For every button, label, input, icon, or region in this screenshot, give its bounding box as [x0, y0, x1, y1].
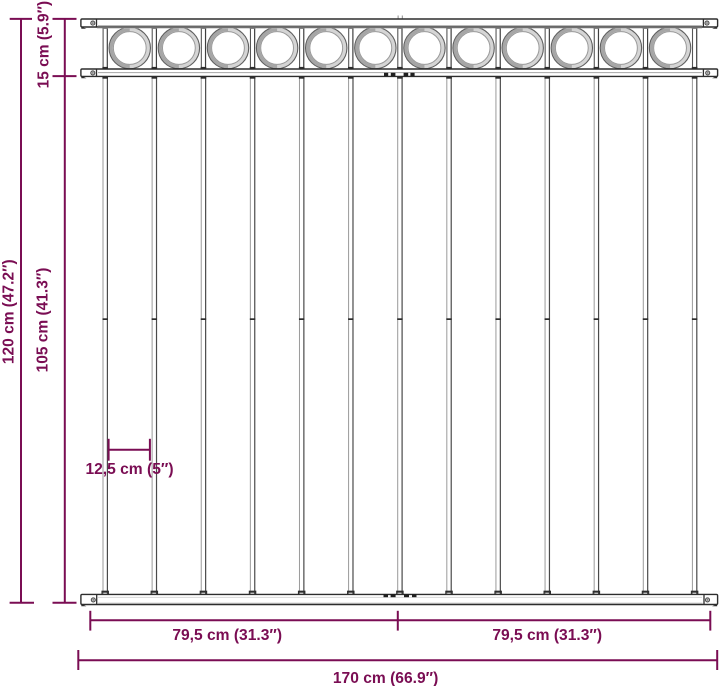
svg-text:105 cm (41.3″): 105 cm (41.3″) [34, 268, 51, 373]
svg-text:79,5 cm (31.3″): 79,5 cm (31.3″) [492, 627, 602, 644]
svg-text:120 cm (47.2″): 120 cm (47.2″) [1, 259, 18, 364]
svg-text:15 cm (5.9″): 15 cm (5.9″) [36, 1, 53, 89]
svg-text:79,5 cm (31.3″): 79,5 cm (31.3″) [172, 627, 282, 644]
svg-text:170 cm (66.9″): 170 cm (66.9″) [333, 670, 438, 686]
svg-text:12,5 cm (5″): 12,5 cm (5″) [85, 461, 173, 478]
